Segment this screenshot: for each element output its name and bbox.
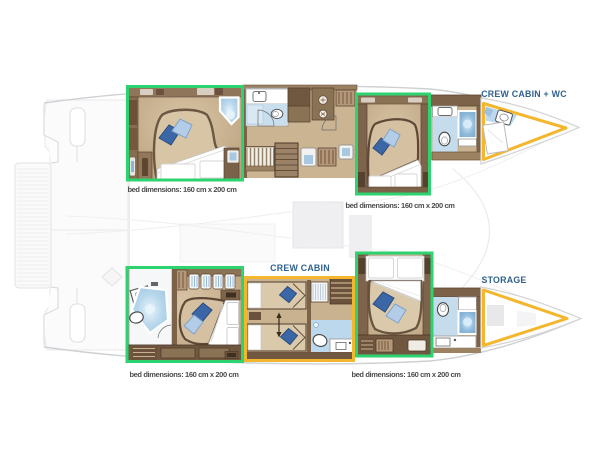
svg-text:CREW CABIN + WC: CREW CABIN + WC [481, 89, 567, 99]
svg-text:bed dimensions: 160 cm x 200 c: bed dimensions: 160 cm x 200 cm [129, 370, 239, 379]
svg-text:bed dimensions: 160 cm x 200 c: bed dimensions: 160 cm x 200 cm [345, 201, 455, 210]
svg-text:CREW CABIN: CREW CABIN [270, 263, 330, 273]
svg-text:bed dimensions: 160 cm x 200 c: bed dimensions: 160 cm x 200 cm [351, 370, 461, 379]
svg-text:bed dimensions: 160 cm x 200 c: bed dimensions: 160 cm x 200 cm [127, 185, 237, 194]
svg-text:STORAGE: STORAGE [481, 275, 526, 285]
